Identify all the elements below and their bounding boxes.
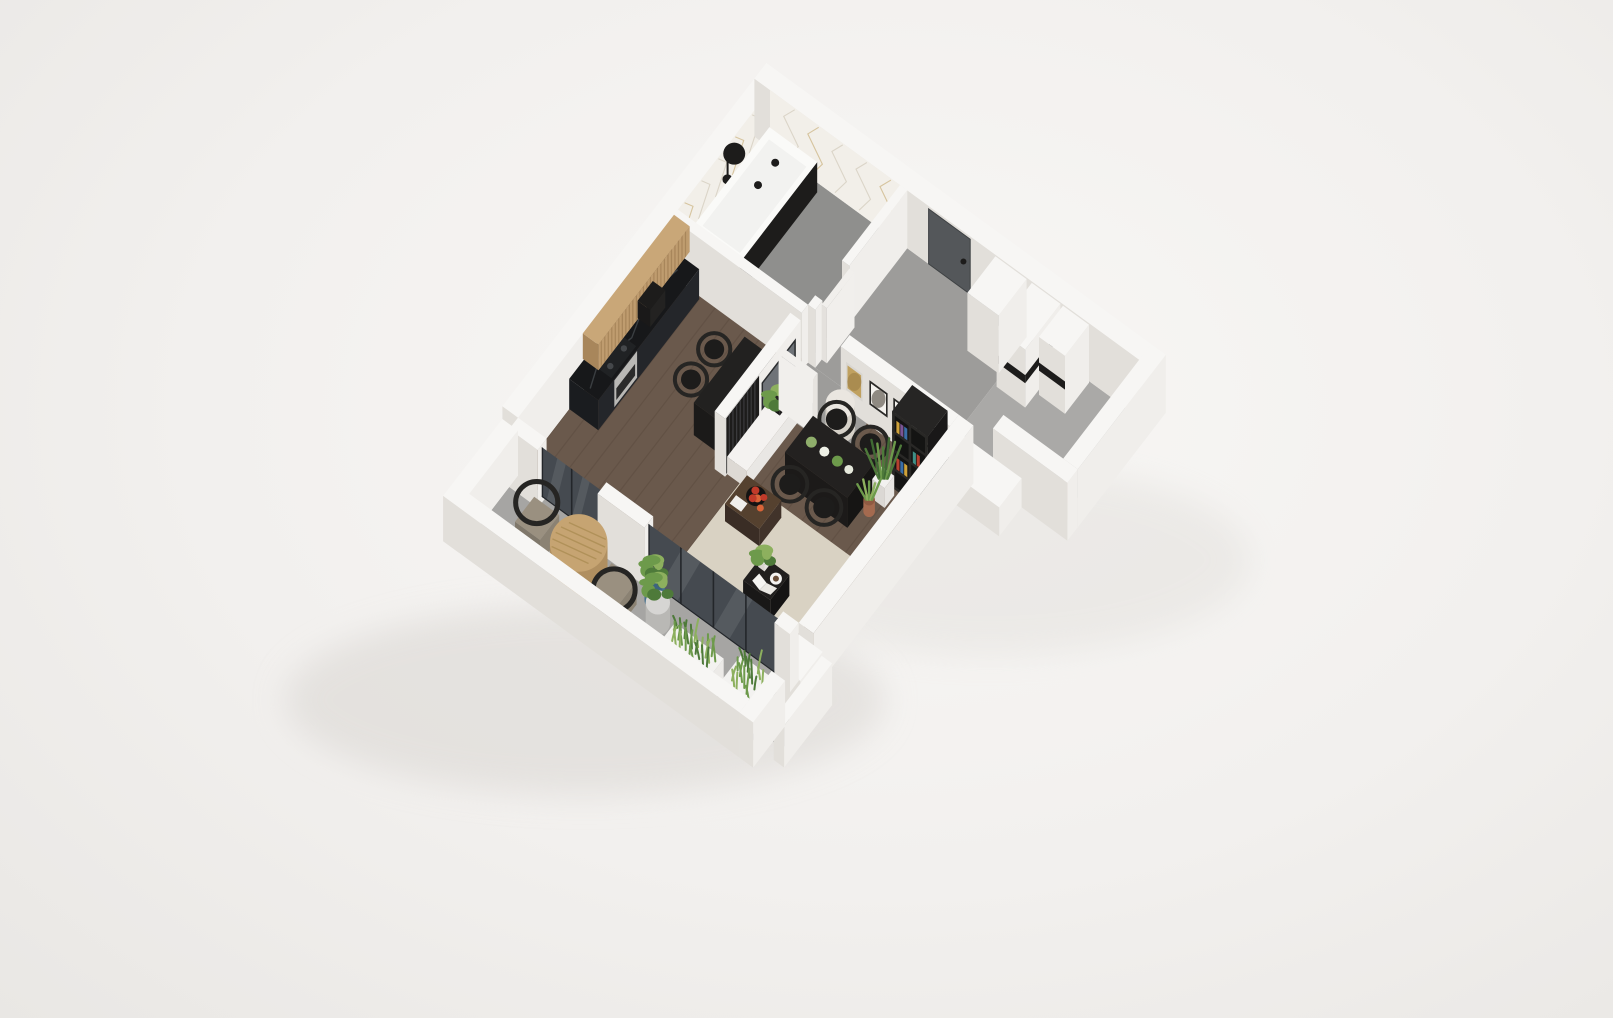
bathtub-faucet-1 bbox=[771, 159, 779, 167]
entrance-door-handle bbox=[960, 259, 966, 265]
burner-4 bbox=[607, 363, 613, 369]
floor-plan-page bbox=[0, 0, 1613, 1018]
apple-4 bbox=[760, 494, 767, 501]
burner-2 bbox=[621, 345, 627, 351]
floorplan-svg bbox=[0, 0, 1613, 1018]
apple-5 bbox=[757, 504, 764, 511]
centerpiece-4 bbox=[844, 465, 853, 474]
apple-3 bbox=[749, 494, 757, 502]
apple-1 bbox=[751, 486, 759, 494]
centerpiece-1 bbox=[806, 437, 817, 448]
wall-bathroom-hall-lower bbox=[808, 295, 823, 368]
centerpiece-2 bbox=[819, 447, 829, 457]
isometric-floor-plan-figure bbox=[0, 0, 1613, 1018]
coffee-cup-inner bbox=[773, 576, 779, 582]
shower-head bbox=[723, 143, 745, 165]
centerpiece-3 bbox=[832, 456, 843, 467]
bathtub-faucet-2 bbox=[754, 181, 762, 189]
